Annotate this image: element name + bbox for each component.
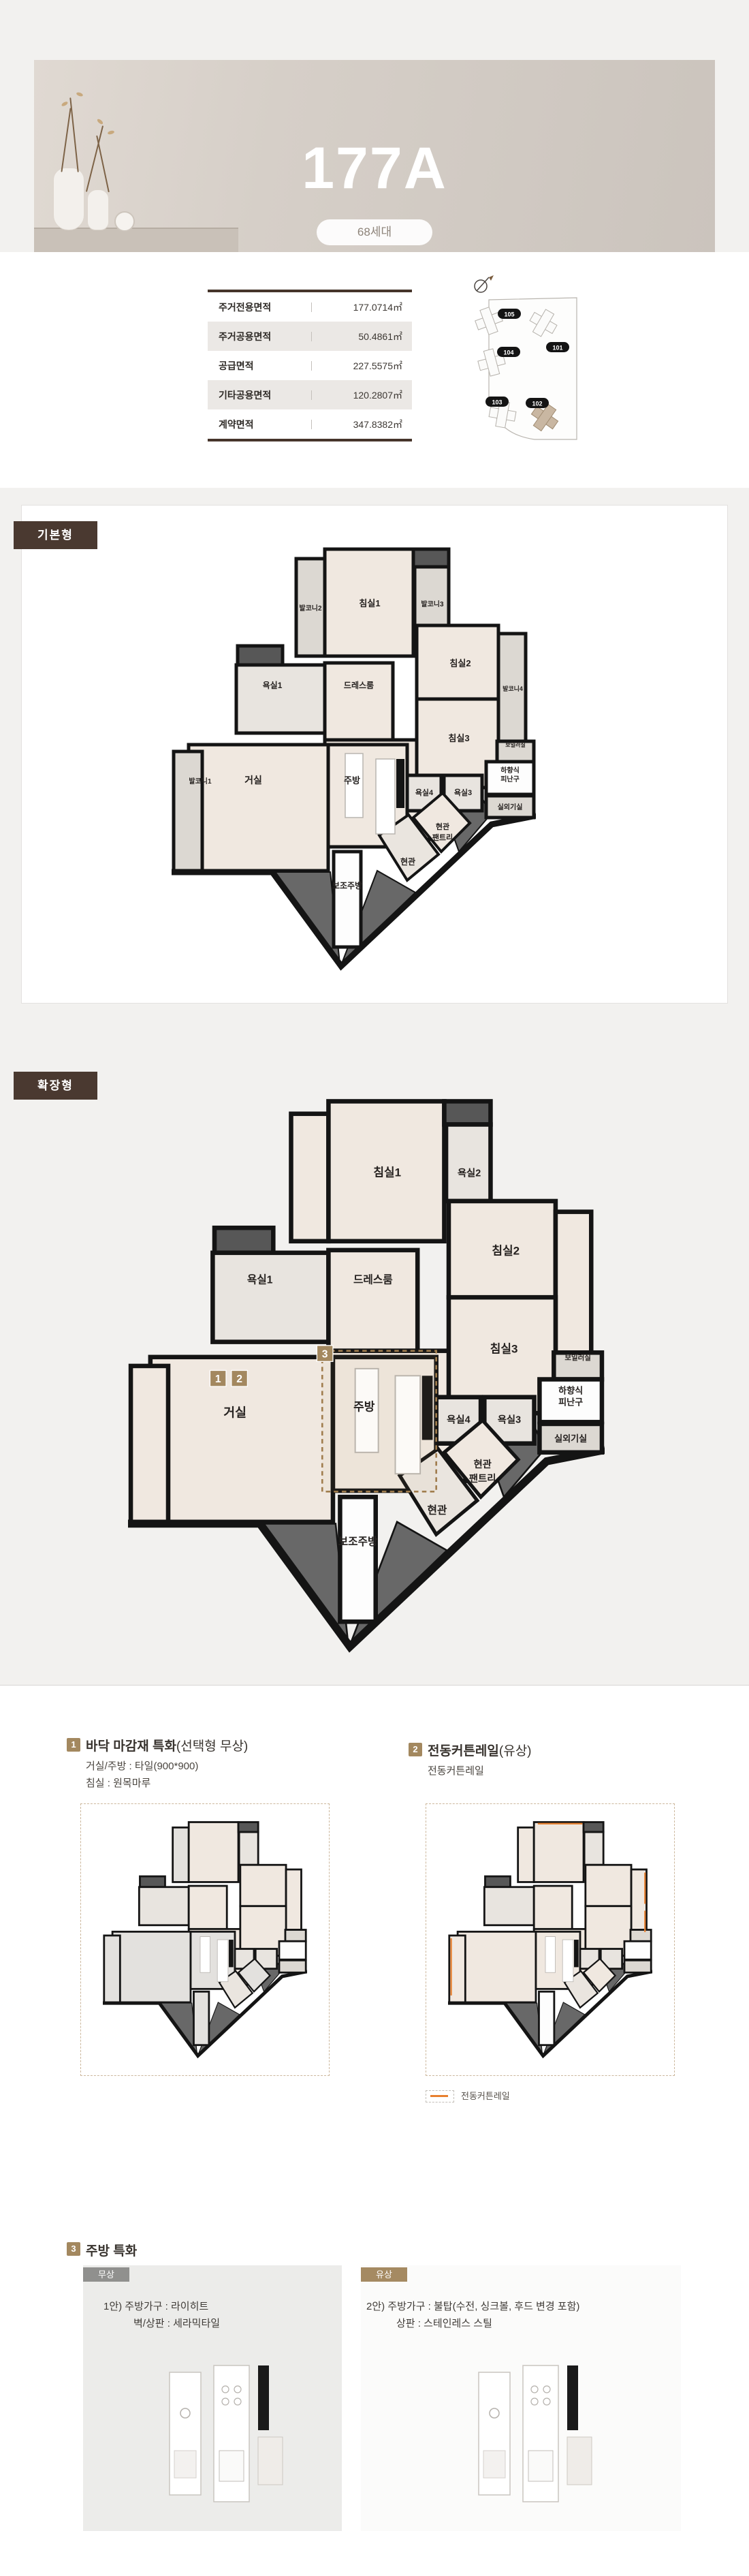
room-label: 거실 — [223, 1405, 246, 1419]
room-label: 피난구 — [558, 1397, 583, 1407]
option2-number-badge: 2 — [409, 1743, 422, 1756]
option2-description: 전동커튼레일 — [428, 1763, 484, 1780]
floor-plan-basic: 발코니2침실1발코니3침실2발코니4욕실1드레스룸침실3보일러실하향식피난구실외… — [172, 544, 536, 973]
option1-number-badge: 1 — [67, 1738, 80, 1752]
room-label: 팬트리 — [432, 833, 453, 842]
divider — [311, 302, 312, 312]
kitchen-island — [545, 1937, 556, 1973]
mini-plan-box-flooring — [80, 1803, 330, 2076]
room-balc1 — [174, 751, 202, 871]
room-escape — [279, 1941, 306, 1959]
room-label: 침실3 — [490, 1341, 518, 1355]
kitchen-section-title: 주방 특화 — [86, 2241, 137, 2259]
room-label: 드레스룸 — [344, 680, 374, 690]
room-label: 현관 — [400, 856, 415, 867]
room-label: 침실3 — [448, 733, 469, 743]
room-label: 실외기실 — [554, 1433, 587, 1444]
cabinet-icon — [483, 2451, 505, 2478]
room-balc1 — [131, 1366, 168, 1522]
unit-type-title: 177A — [34, 139, 715, 198]
svg-text:3: 3 — [322, 1348, 328, 1360]
option1-line1: 거실/주방 : 타일(900*900) — [86, 1758, 198, 1775]
fridge-icon — [258, 2437, 283, 2485]
room-outdoor — [624, 1960, 651, 1972]
room-label: 발코니3 — [421, 600, 444, 608]
room-living — [112, 1931, 191, 2002]
kitchen-island — [217, 1940, 228, 1982]
divider — [311, 332, 312, 341]
kitchen-paid-line1: 2안) 주방가구 : 불탑(수전, 싱크볼, 후드 변경 포함) — [366, 2298, 579, 2315]
svg-text:103: 103 — [492, 399, 502, 406]
room-dress — [189, 1886, 227, 1929]
option1-line2: 침실 : 원목마루 — [86, 1775, 198, 1792]
option2-header: 2 — [409, 1743, 422, 1756]
kitchen-title-text: 주방 특화 — [86, 2244, 137, 2259]
room-balc4 — [556, 1212, 591, 1353]
kitchen-island — [376, 759, 395, 834]
room-label: 주방 — [344, 775, 360, 786]
section-label-basic: 기본형 — [14, 521, 97, 549]
room-balc2 — [291, 1114, 328, 1241]
units-count-badge: 68세대 — [317, 219, 432, 245]
room-label: 현관 — [436, 822, 449, 831]
curtain-rail-legend-icon — [426, 2090, 454, 2102]
kitchen-number-badge: 3 — [67, 2242, 80, 2256]
kitchen-paid-line2: 상판 : 스테인레스 스틸 — [396, 2315, 579, 2332]
room-label: 거실 — [244, 775, 262, 786]
divider — [311, 390, 312, 400]
option2-title-bold: 전동커튼레일 — [428, 1744, 499, 1758]
fridge-icon — [567, 2437, 592, 2485]
hero-banner: 177A 68세대 — [34, 60, 715, 252]
room-subk — [539, 1991, 554, 2045]
area-row-value: 347.8382㎡ — [319, 418, 412, 431]
kitchen-panel-free: 무상 1안) 주방가구 : 라이히트 벽/상판 : 세라믹타일 — [83, 2265, 342, 2531]
room-label: 침실2 — [449, 658, 471, 668]
room-label: 발코니2 — [299, 604, 322, 612]
wall-bar — [567, 2365, 578, 2430]
room-label: 욕실1 — [247, 1273, 273, 1286]
room-dress — [325, 663, 393, 740]
kitchen-island — [562, 1940, 573, 1982]
room-label: 하향식 — [558, 1385, 583, 1395]
room-bath2 — [584, 1832, 603, 1865]
room-bath2 — [239, 1832, 258, 1865]
area-row-value: 120.2807㎡ — [319, 388, 412, 402]
room-label: 보일러실 — [505, 741, 525, 748]
room-label: 드레스룸 — [353, 1273, 393, 1286]
building-badge: 103 — [485, 397, 509, 407]
room-label: 침실2 — [492, 1243, 520, 1257]
area-row-value: 177.0714㎡ — [319, 300, 412, 314]
room-label: 욕실4 — [447, 1414, 470, 1426]
mini-plan-box-curtain — [426, 1803, 675, 2076]
kitchen-diagram-paid — [441, 2348, 605, 2519]
kitchen-option-zone — [322, 1351, 436, 1492]
area-table-row: 주거전용면적177.0714㎡ — [208, 292, 412, 322]
cabinet-icon — [174, 2451, 196, 2478]
kitchen-free-line1: 1안) 주방가구 : 라이히트 — [103, 2298, 220, 2315]
option1-description: 거실/주방 : 타일(900*900) 침실 : 원목마루 — [86, 1758, 198, 1792]
building-badge: 101 — [546, 342, 569, 352]
divider — [311, 420, 312, 429]
room-label: 발코니4 — [503, 685, 523, 692]
room-label: 실외기실 — [498, 803, 523, 811]
room-label: 보일러실 — [564, 1353, 590, 1362]
kitchen-wall-bar — [396, 759, 404, 808]
room-label: 욕실1 — [263, 680, 283, 690]
room-subk — [193, 1991, 208, 2045]
dried-leaf-icon — [61, 101, 68, 107]
floor-plan-expanded: 123침실1욕실2침실2욕실1드레스룸침실3보일러실하향식피난구실외기실거실주방… — [128, 1094, 605, 1656]
room-label: 팬트리 — [469, 1473, 496, 1485]
room-bed2 — [586, 1865, 631, 1906]
room-living — [189, 745, 328, 871]
curtain-legend: 전동커튼레일 — [426, 2090, 510, 2102]
option1-title-bold: 바닥 마감재 특화 — [86, 1739, 176, 1754]
kitchen-free-description: 1안) 주방가구 : 라이히트 벽/상판 : 세라믹타일 — [103, 2298, 220, 2332]
room-ac3 — [584, 1822, 603, 1832]
compass-icon — [475, 275, 494, 292]
area-table-row: 계약면적347.8382㎡ — [208, 409, 412, 439]
wall-bar — [258, 2365, 269, 2430]
area-row-label: 기타공용면적 — [219, 388, 302, 402]
svg-text:2: 2 — [236, 1374, 242, 1385]
area-row-label: 주거전용면적 — [219, 300, 302, 314]
room-dress — [328, 1250, 417, 1351]
room-escape — [624, 1941, 651, 1959]
room-bed2 — [240, 1865, 286, 1906]
room-label: 침실1 — [373, 1165, 401, 1179]
kitchen-island — [200, 1937, 210, 1973]
room-label: 하향식 — [500, 766, 520, 775]
area-table: 주거전용면적177.0714㎡주거공용면적50.4861㎡공급면적227.557… — [208, 290, 412, 441]
room-ac3 — [444, 1101, 490, 1124]
room-label: 피난구 — [500, 775, 520, 783]
area-table-row: 기타공용면적120.2807㎡ — [208, 380, 412, 409]
option2-line1: 전동커튼레일 — [428, 1763, 484, 1780]
building-badge: 105 — [498, 309, 521, 319]
room-label: 발코니1 — [189, 777, 212, 786]
paid-tag: 유상 — [361, 2267, 407, 2282]
shelf-decoration — [34, 228, 238, 252]
room-label: 보조주방 — [338, 1536, 378, 1548]
room-label: 침실1 — [359, 598, 380, 608]
kitchen-diagram-free — [132, 2348, 296, 2519]
area-row-value: 50.4861㎡ — [319, 330, 412, 343]
room-label: 욕실3 — [454, 788, 472, 797]
mini-floor-plan-curtain — [448, 1819, 652, 2060]
room-subk — [334, 852, 361, 947]
dried-leaf-icon — [108, 130, 115, 135]
room-balc3 — [415, 567, 449, 625]
dried-leaf-icon — [97, 118, 104, 125]
room-acl — [485, 1876, 510, 1887]
dried-leaf-icon — [76, 91, 83, 97]
divider — [311, 361, 312, 371]
option2-title: 전동커튼레일(유상) — [428, 1741, 532, 1759]
room-label: 현관 — [428, 1504, 447, 1517]
option1-title: 바닥 마감재 특화(선택형 무상) — [86, 1736, 248, 1754]
area-row-value: 227.5575㎡ — [319, 359, 412, 373]
room-acl — [238, 646, 283, 665]
building-badge: 104 — [497, 347, 520, 357]
plan-number-badge: 1 — [210, 1370, 226, 1386]
room-outdoor — [279, 1960, 306, 1972]
area-row-label: 주거공용면적 — [219, 330, 302, 343]
room-bath2 — [446, 1124, 490, 1200]
room-acl — [140, 1876, 165, 1887]
room-bath1 — [236, 665, 325, 733]
area-table-row: 주거공용면적50.4861㎡ — [208, 322, 412, 351]
sink-basin-icon — [528, 2451, 553, 2481]
area-row-label: 공급면적 — [219, 359, 302, 373]
room-ac3 — [413, 549, 449, 567]
room-label: 주방 — [353, 1400, 375, 1413]
option1-header: 1 — [67, 1738, 80, 1752]
svg-text:105: 105 — [504, 311, 514, 318]
room-bed1 — [534, 1822, 584, 1882]
kitchen-wall-bar — [574, 1940, 579, 1967]
room-boiler — [285, 1929, 306, 1941]
room-bath1 — [139, 1887, 189, 1925]
curtain-legend-label: 전동커튼레일 — [461, 2090, 510, 2102]
room-ac3 — [238, 1822, 258, 1832]
kitchen-paid-description: 2안) 주방가구 : 불탑(수전, 싱크볼, 후드 변경 포함) 상판 : 스테… — [366, 2298, 579, 2332]
mini-floor-plan-flooring — [103, 1819, 307, 2060]
room-label: 욕실4 — [415, 788, 434, 797]
room-label: 욕실3 — [498, 1414, 521, 1426]
free-tag: 무상 — [83, 2267, 129, 2282]
room-acl — [214, 1228, 273, 1253]
room-label: 보조주방 — [332, 880, 362, 890]
kitchen-wall-bar — [229, 1940, 234, 1967]
building-badge: 102 — [526, 398, 549, 408]
section-label-expanded: 확장형 — [14, 1072, 97, 1100]
room-balc1 — [104, 1936, 121, 2002]
option1-title-rest: (선택형 무상) — [176, 1739, 248, 1754]
room-boiler — [631, 1929, 651, 1941]
kitchen-free-line2: 벽/상판 : 세라믹타일 — [133, 2315, 220, 2332]
room-subk — [340, 1497, 375, 1621]
kitchen-panel-paid: 유상 2안) 주방가구 : 불탑(수전, 싱크볼, 후드 변경 포함) 상판 :… — [361, 2265, 681, 2531]
room-label: 욕실2 — [458, 1167, 481, 1179]
room-balc4 — [286, 1869, 301, 1930]
option2-title-rest: (유상) — [499, 1744, 532, 1758]
room-living — [458, 1931, 536, 2002]
kitchen-island — [345, 754, 363, 818]
room-balc2 — [518, 1827, 535, 1882]
svg-text:104: 104 — [503, 350, 513, 356]
kitchen-section-header: 3 — [67, 2242, 80, 2256]
plan-number-badge: 2 — [232, 1370, 248, 1386]
floorplan-page: 177A 68세대 주거전용면적177.0714㎡주거공용면적50.4861㎡공… — [0, 0, 749, 2576]
sink-basin-icon — [219, 2451, 244, 2481]
plan-number-badge: 3 — [317, 1346, 333, 1362]
svg-text:1: 1 — [215, 1374, 221, 1385]
svg-text:101: 101 — [552, 345, 562, 352]
room-bath1 — [212, 1253, 328, 1342]
room-label: 현관 — [473, 1459, 491, 1470]
site-map: 105101104103102 — [470, 273, 579, 446]
room-dress — [534, 1886, 572, 1929]
area-table-row: 공급면적227.5575㎡ — [208, 351, 412, 380]
clock-icon — [114, 211, 135, 232]
svg-text:102: 102 — [532, 401, 542, 407]
room-bed1 — [189, 1822, 238, 1882]
room-bath1 — [484, 1887, 534, 1925]
room-balc2 — [173, 1827, 189, 1882]
area-row-label: 계약면적 — [219, 418, 302, 431]
